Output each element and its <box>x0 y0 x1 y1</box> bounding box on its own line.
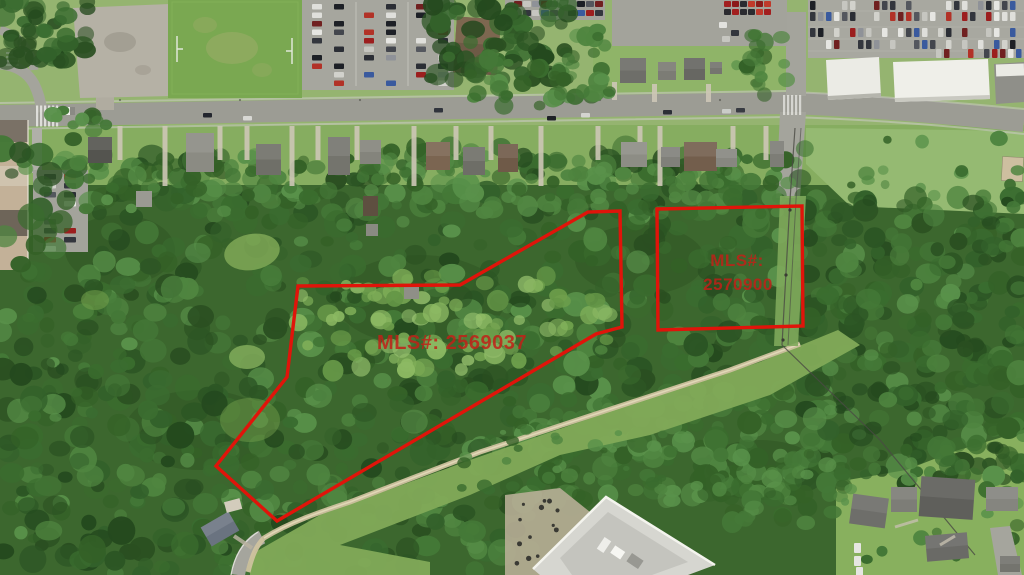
parcel-label-small-line2: 2570900 <box>703 275 773 294</box>
sports-field <box>168 0 302 98</box>
aerial-scene: MLS#: 2569037 MLS#: 2570900 <box>0 0 1024 575</box>
parcel-label-small-line1: MLS#: <box>710 251 764 270</box>
aerial-photo: MLS#: 2569037 MLS#: 2570900 <box>0 0 1024 575</box>
terrain-layers <box>0 0 1024 575</box>
parcel-label-large: MLS#: 2569037 <box>377 332 527 354</box>
